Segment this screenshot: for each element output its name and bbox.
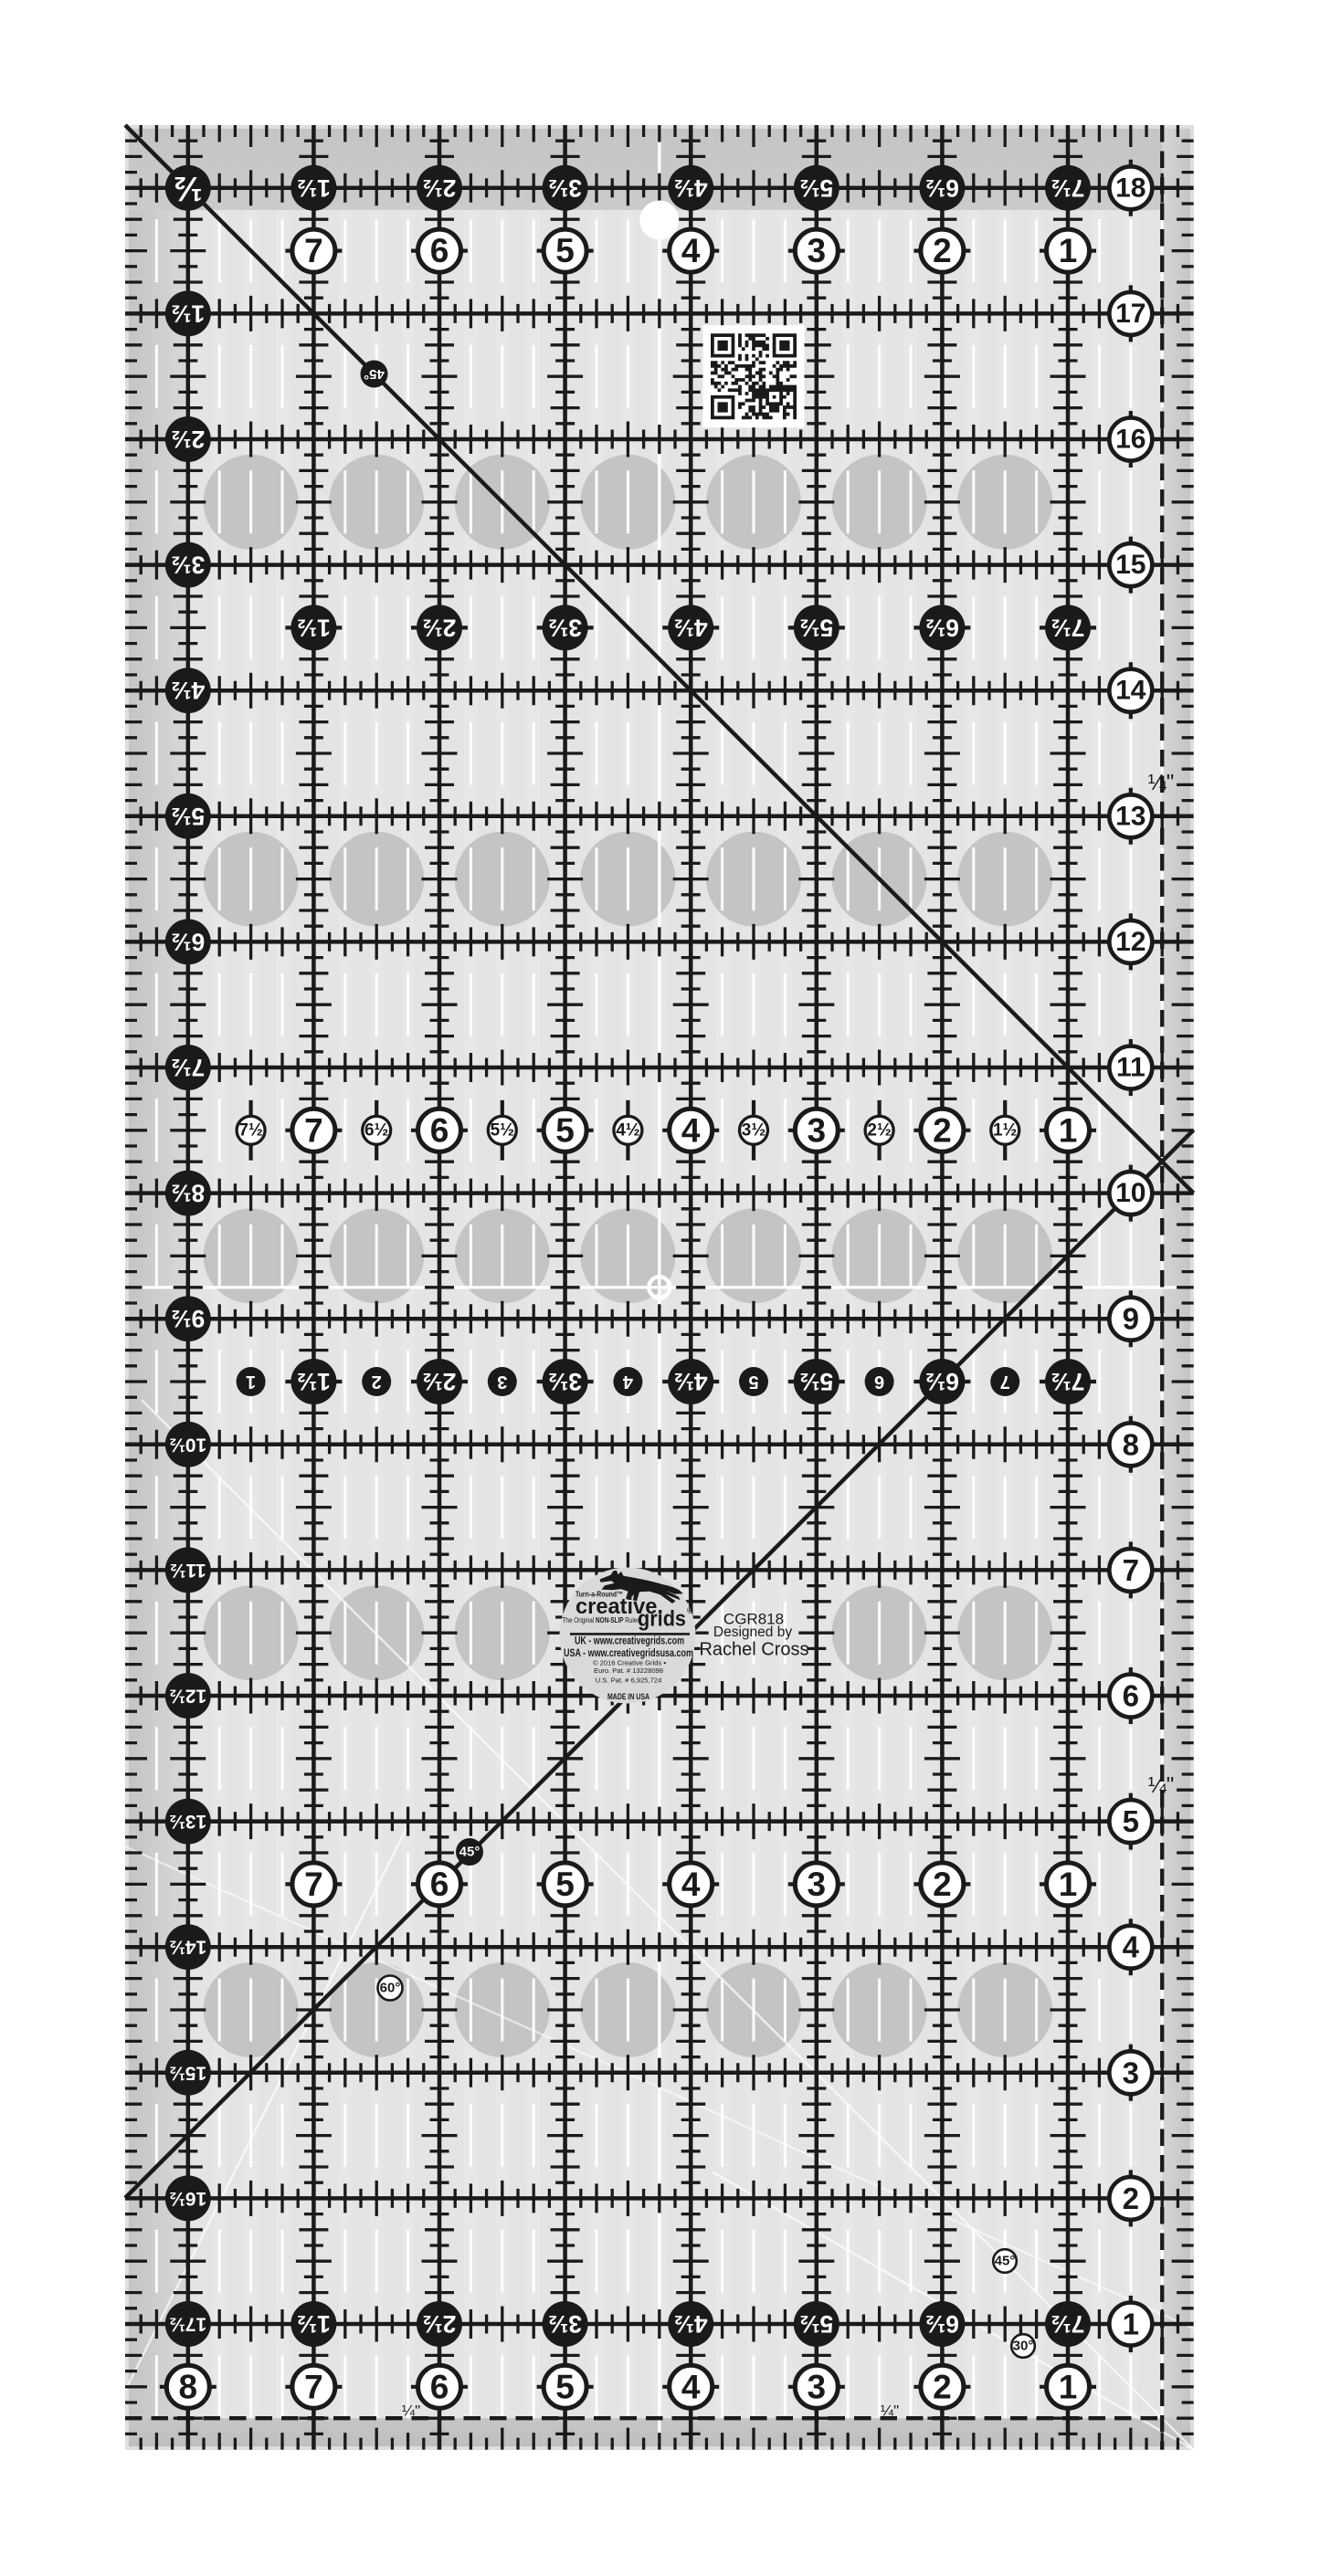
svg-text:2: 2 xyxy=(933,1111,952,1149)
svg-text:5½: 5½ xyxy=(799,174,833,202)
svg-text:13½: 13½ xyxy=(169,1811,206,1832)
svg-text:1: 1 xyxy=(1123,2308,1139,2341)
svg-text:60°: 60° xyxy=(380,1981,401,1996)
svg-text:7½: 7½ xyxy=(1051,1368,1085,1395)
svg-text:12: 12 xyxy=(1115,927,1146,957)
svg-text:1½: 1½ xyxy=(297,174,331,202)
svg-text:4: 4 xyxy=(681,2368,701,2405)
svg-text:18: 18 xyxy=(1115,173,1146,203)
svg-text:grids: grids xyxy=(638,1607,686,1632)
svg-text:5: 5 xyxy=(555,232,575,269)
svg-text:3: 3 xyxy=(1123,2056,1139,2089)
svg-text:6½: 6½ xyxy=(925,2310,959,2338)
svg-text:2½: 2½ xyxy=(867,1120,891,1140)
svg-text:1: 1 xyxy=(246,1372,256,1392)
svg-text:4½: 4½ xyxy=(674,2310,708,2338)
svg-text:5½: 5½ xyxy=(491,1120,514,1140)
svg-text:Euro. Pat. # 13228098: Euro. Pat. # 13228098 xyxy=(594,1667,663,1675)
svg-text:4: 4 xyxy=(681,1111,701,1149)
svg-text:UK - www.creativegrids.com: UK - www.creativegrids.com xyxy=(575,1635,684,1647)
svg-text:7½: 7½ xyxy=(1051,2310,1085,2338)
svg-text:5: 5 xyxy=(555,2368,575,2405)
svg-text:8: 8 xyxy=(1123,1427,1139,1461)
svg-text:6: 6 xyxy=(874,1372,884,1392)
svg-text:3: 3 xyxy=(808,2368,827,2405)
svg-text:1½: 1½ xyxy=(993,1120,1017,1140)
svg-text:3½: 3½ xyxy=(548,1368,582,1395)
svg-text:6: 6 xyxy=(430,1111,449,1149)
svg-text:8½: 8½ xyxy=(171,1180,205,1207)
svg-text:30°: 30° xyxy=(1013,2339,1034,2354)
svg-text:4½: 4½ xyxy=(171,677,205,704)
svg-text:2½: 2½ xyxy=(423,1368,457,1395)
svg-text:U.S. Pat. # 6,925,724: U.S. Pat. # 6,925,724 xyxy=(596,1677,662,1685)
svg-text:14½: 14½ xyxy=(169,1937,206,1958)
svg-text:Designed by: Designed by xyxy=(713,1624,792,1640)
svg-text:1: 1 xyxy=(1059,1111,1078,1149)
svg-text:8: 8 xyxy=(179,2368,198,2405)
svg-text:6: 6 xyxy=(430,1866,449,1903)
svg-text:¼": ¼" xyxy=(1148,1773,1175,1798)
svg-text:6½: 6½ xyxy=(171,928,205,955)
svg-text:16: 16 xyxy=(1115,425,1146,455)
svg-text:2½: 2½ xyxy=(423,174,457,202)
svg-text:7: 7 xyxy=(304,1866,323,1903)
svg-text:12½: 12½ xyxy=(169,1686,206,1707)
svg-text:15½: 15½ xyxy=(169,2062,206,2083)
svg-text:11: 11 xyxy=(1116,1053,1146,1083)
svg-text:½: ½ xyxy=(174,169,203,207)
svg-text:1½: 1½ xyxy=(171,300,205,327)
svg-text:6½: 6½ xyxy=(364,1120,388,1140)
svg-text:Rachel Cross: Rachel Cross xyxy=(699,1640,808,1660)
svg-text:3½: 3½ xyxy=(742,1120,766,1140)
svg-text:16½: 16½ xyxy=(169,2188,206,2209)
svg-text:2: 2 xyxy=(1123,2182,1139,2215)
svg-text:5: 5 xyxy=(748,1372,758,1392)
svg-text:4½: 4½ xyxy=(616,1120,639,1140)
svg-text:7½: 7½ xyxy=(1051,174,1085,202)
svg-text:1½: 1½ xyxy=(297,614,331,641)
svg-text:7½: 7½ xyxy=(238,1120,262,1140)
svg-text:4: 4 xyxy=(681,232,701,269)
svg-text:1½: 1½ xyxy=(297,2310,331,2338)
svg-text:45°: 45° xyxy=(459,1845,480,1860)
svg-text:7: 7 xyxy=(304,1111,323,1149)
svg-text:13: 13 xyxy=(1115,801,1146,831)
svg-text:1: 1 xyxy=(1059,232,1078,269)
svg-text:6: 6 xyxy=(1123,1679,1139,1713)
svg-text:7: 7 xyxy=(304,2368,323,2405)
svg-text:3½: 3½ xyxy=(171,552,205,579)
svg-text:3½: 3½ xyxy=(548,614,582,641)
svg-text:3: 3 xyxy=(808,1111,827,1149)
svg-text:© 2016 Creative Grids ▪: © 2016 Creative Grids ▪ xyxy=(593,1658,666,1667)
svg-text:14: 14 xyxy=(1115,676,1146,706)
svg-text:3: 3 xyxy=(497,1372,507,1392)
svg-text:5½: 5½ xyxy=(799,614,833,641)
svg-text:3: 3 xyxy=(808,1866,827,1903)
svg-text:9½: 9½ xyxy=(171,1305,205,1332)
svg-text:17: 17 xyxy=(1115,299,1146,329)
svg-text:45°: 45° xyxy=(364,366,385,382)
svg-text:¼": ¼" xyxy=(402,2403,420,2420)
svg-text:4½: 4½ xyxy=(674,1368,708,1395)
svg-text:5½: 5½ xyxy=(171,803,205,830)
svg-text:4½: 4½ xyxy=(674,614,708,641)
svg-text:®: ® xyxy=(687,1606,693,1615)
svg-text:5½: 5½ xyxy=(799,2310,833,2338)
svg-text:5: 5 xyxy=(555,1111,575,1149)
svg-text:2½: 2½ xyxy=(423,2310,457,2338)
svg-text:4½: 4½ xyxy=(674,174,708,202)
svg-text:17½: 17½ xyxy=(169,2314,206,2335)
svg-text:2: 2 xyxy=(933,1866,952,1903)
svg-text:10: 10 xyxy=(1115,1178,1146,1208)
svg-text:15: 15 xyxy=(1115,550,1146,580)
svg-text:2: 2 xyxy=(372,1372,382,1392)
svg-text:5: 5 xyxy=(1123,1804,1139,1838)
svg-text:10½: 10½ xyxy=(169,1434,206,1455)
svg-text:9: 9 xyxy=(1123,1302,1139,1336)
svg-text:5½: 5½ xyxy=(799,1368,833,1395)
svg-text:6½: 6½ xyxy=(925,1368,959,1395)
svg-text:3½: 3½ xyxy=(548,174,582,202)
svg-text:4: 4 xyxy=(622,1372,633,1392)
svg-text:45°: 45° xyxy=(995,2254,1016,2269)
svg-text:4: 4 xyxy=(1123,1930,1140,1964)
svg-text:6½: 6½ xyxy=(925,614,959,641)
svg-text:2: 2 xyxy=(933,232,952,269)
svg-text:7: 7 xyxy=(304,232,323,269)
svg-text:2½: 2½ xyxy=(423,614,457,641)
svg-text:6½: 6½ xyxy=(925,174,959,202)
svg-text:3½: 3½ xyxy=(548,2310,582,2338)
svg-text:7: 7 xyxy=(1000,1372,1010,1392)
svg-text:1½: 1½ xyxy=(297,1368,331,1395)
svg-text:1: 1 xyxy=(1059,1866,1078,1903)
svg-text:MADE IN USA: MADE IN USA xyxy=(607,1692,650,1701)
svg-text:4: 4 xyxy=(681,1866,701,1903)
svg-text:¼": ¼" xyxy=(1148,771,1175,795)
svg-text:7: 7 xyxy=(1123,1553,1139,1587)
svg-text:¼": ¼" xyxy=(881,2403,899,2420)
svg-text:5: 5 xyxy=(555,1866,575,1903)
svg-text:The Original NON-SLIP Ruler: The Original NON-SLIP Ruler xyxy=(563,1616,639,1624)
svg-text:7½: 7½ xyxy=(171,1054,205,1081)
svg-text:USA - www.creativegridsusa.com: USA - www.creativegridsusa.com xyxy=(564,1646,693,1659)
svg-text:2½: 2½ xyxy=(171,426,205,453)
svg-text:6: 6 xyxy=(430,232,449,269)
svg-text:1: 1 xyxy=(1059,2368,1078,2405)
svg-text:7½: 7½ xyxy=(1051,614,1085,641)
svg-text:11½: 11½ xyxy=(170,1560,206,1581)
svg-text:2: 2 xyxy=(933,2368,952,2405)
svg-text:3: 3 xyxy=(808,232,827,269)
svg-text:6: 6 xyxy=(430,2368,449,2405)
